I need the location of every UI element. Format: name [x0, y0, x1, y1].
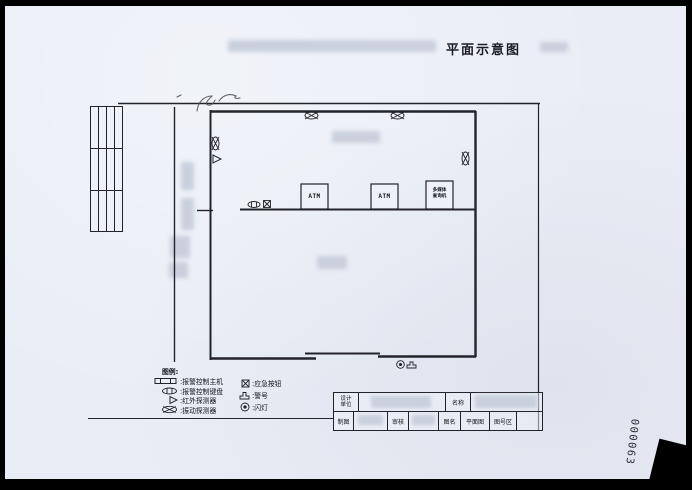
- legend-item: :闪灯: [238, 402, 268, 412]
- legend-item-label: :红外探测器: [180, 395, 216, 405]
- vibration-detector-icon: [212, 137, 219, 150]
- vibration-detector-icon: [462, 152, 469, 165]
- vibration-detector-icon: [305, 112, 318, 119]
- kiosk-label: 多媒体 查询机: [426, 188, 453, 199]
- legend-item-label: :振动探测器: [180, 405, 216, 415]
- redacted-text: [358, 415, 383, 425]
- drawing-no-value: [517, 412, 542, 430]
- title-block-row: 制图 审核 图名 平面图 图号区: [334, 412, 542, 430]
- drawing-name-value: 平面图: [461, 412, 490, 430]
- checker-label: 审核: [388, 412, 409, 430]
- kiosk-label-line2: 查询机: [426, 194, 453, 200]
- vibration-detector-icon: [150, 405, 178, 414]
- legend-item: :报警控制键盘: [150, 386, 223, 396]
- legend-header: 图例:: [162, 366, 178, 376]
- scan-border-bottom: [0, 479, 692, 490]
- legend-item-label: :应急按钮: [252, 378, 281, 388]
- infrared-detector-icon: [213, 155, 221, 163]
- flash-light-icon: [397, 361, 405, 369]
- legend-item: :应急按钮: [238, 378, 281, 388]
- flash-light-icon: [238, 402, 250, 412]
- legend-item: :警号: [238, 390, 268, 400]
- emergency-button-icon: [238, 379, 250, 388]
- emergency-button-icon: [264, 201, 271, 208]
- drafter-label: 制图: [334, 412, 354, 430]
- drafter-value: [354, 412, 388, 430]
- drawing-no-label: 图号区: [490, 412, 517, 430]
- checker-value: [409, 412, 439, 430]
- alarm-siren-icon: [407, 362, 416, 368]
- legend-item: :报警控制主机: [150, 376, 223, 386]
- design-unit-label: 设计 单位: [334, 393, 359, 411]
- legend-item: :红外探测器: [150, 395, 216, 405]
- staircase: [91, 107, 123, 232]
- redacted-text: [412, 415, 435, 425]
- alarm-keypad-icon: [248, 202, 260, 208]
- vibration-detector-icon: [391, 112, 404, 119]
- alarm-siren-icon: [238, 391, 250, 400]
- scan-border-right: [686, 0, 692, 490]
- legend-item: :振动探测器: [150, 405, 216, 415]
- name-label: 名称: [446, 393, 471, 411]
- alarm-control-host-icon: [150, 377, 178, 385]
- title-block-row: 设计 单位 名称: [334, 393, 542, 412]
- redacted-text: [371, 396, 431, 408]
- legend-item-label: :报警控制键盘: [180, 386, 223, 396]
- redacted-text: [475, 395, 537, 408]
- legend: 图例: :报警控制主机 :报警控制键盘 :红外探测器: [146, 364, 331, 418]
- scan-border-top: [0, 0, 692, 6]
- title-block: 设计 单位 名称 制图 审核 图名 平面图 图号区: [333, 392, 543, 431]
- infrared-detector-icon: [150, 395, 178, 405]
- legend-item-label: :警号: [252, 390, 268, 400]
- scan-border-left: [0, 0, 5, 490]
- atm-label: ATM: [371, 193, 398, 200]
- scanned-document: 平面示意图: [0, 0, 692, 490]
- design-unit-value: [359, 393, 446, 411]
- drawing-name-label: 图名: [439, 412, 461, 430]
- name-value: [471, 393, 542, 411]
- legend-item-label: :报警控制主机: [180, 376, 223, 386]
- atm-label: ATM: [301, 193, 328, 200]
- legend-item-label: :闪灯: [252, 402, 268, 412]
- alarm-control-keypad-icon: [150, 387, 178, 395]
